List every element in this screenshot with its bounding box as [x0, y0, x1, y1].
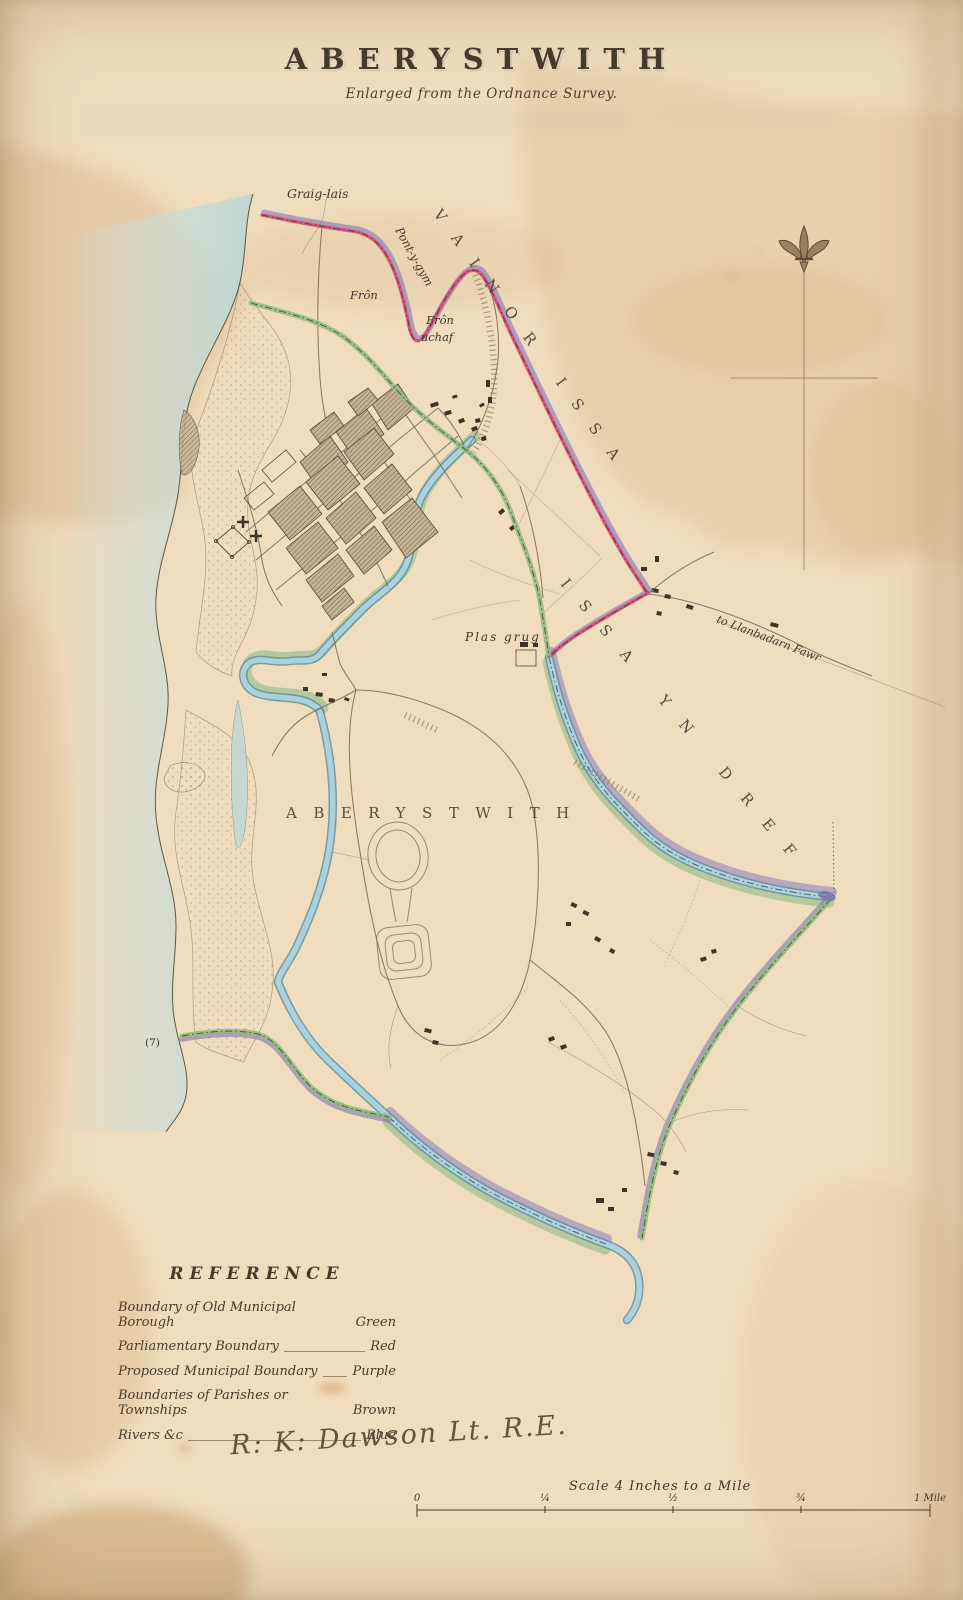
- legend-label: Proposed Municipal Boundary: [118, 1365, 318, 1380]
- label-graig-lais: Graig-lais: [287, 186, 349, 201]
- legend-row-proposed-municipal: Proposed Municipal Boundary Purple: [118, 1365, 396, 1380]
- label-township-issa-yn-dref: ISSA YN DREF: [557, 575, 814, 876]
- reference-heading: REFERENCE: [118, 1264, 396, 1284]
- label-plas-grug: Plas grug: [464, 630, 541, 644]
- legend-row-parishes: Boundaries of Parishes or Townships Brow…: [118, 1389, 396, 1419]
- map-title: ABERYSTWITH: [0, 42, 963, 76]
- legend-leader-line: [323, 1376, 348, 1377]
- antique-map-sheet: Graig-lais Pont-y-gym Frôn Frôn uchaf VA…: [0, 0, 963, 1600]
- legend-leader-line: [284, 1351, 365, 1352]
- label-fron-uchaf-1: Frôn: [425, 313, 454, 327]
- label-plot-number: (7): [145, 1037, 160, 1049]
- legend-row-parliamentary: Parliamentary Boundary Red: [118, 1340, 396, 1355]
- legend-label: Boundaries of Parishes or Townships: [118, 1389, 343, 1419]
- scale-tick-0: 0: [414, 1493, 421, 1504]
- label-fron: Frôn: [349, 288, 378, 302]
- legend-label: Parliamentary Boundary: [118, 1340, 279, 1355]
- hillfort-earthworks: [364, 818, 433, 980]
- legend-value: Purple: [352, 1365, 396, 1380]
- label-to-llanbadarn-fawr: to Llanbadarn Fawr: [715, 613, 823, 665]
- scale-tick-half: ½: [668, 1493, 678, 1504]
- scale-caption: Scale 4 Inches to a Mile: [569, 1479, 751, 1494]
- legend-label: Boundary of Old Municipal Borough: [118, 1301, 346, 1331]
- mill-stream: [548, 652, 832, 902]
- label-parish-aberystwith: ABERYSTWITH: [285, 804, 586, 822]
- legend-value: Brown: [353, 1404, 396, 1419]
- label-fron-uchaf-2: uchaf: [421, 330, 455, 344]
- legend-value: Red: [370, 1340, 396, 1355]
- boundary-bottom-right: [640, 897, 831, 1238]
- legend-value: Green: [356, 1316, 396, 1331]
- legend-row-old-borough: Boundary of Old Municipal Borough Green: [118, 1301, 396, 1331]
- map-subtitle: Enlarged from the Ordnance Survey.: [0, 86, 963, 102]
- scale-tick-quarter: ¼: [540, 1493, 550, 1504]
- scale-tick-mile: 1 Mile: [914, 1493, 946, 1504]
- scale-tick-threequarter: ¾: [796, 1493, 806, 1504]
- legend-label: Rivers &c: [118, 1429, 183, 1444]
